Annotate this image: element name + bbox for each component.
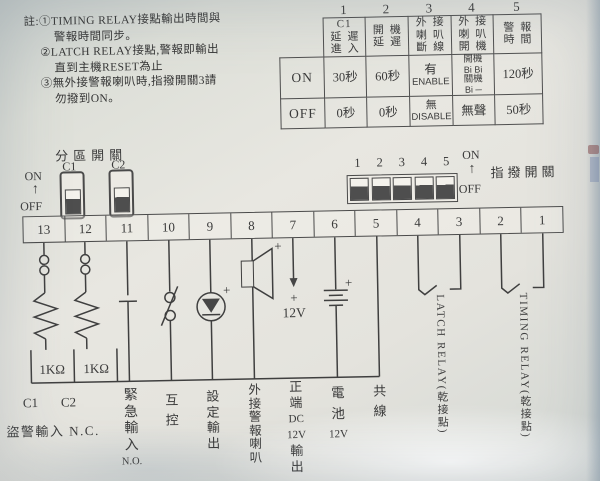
label-c2: C2: [61, 394, 76, 410]
label-common-line: 共 線: [369, 381, 392, 421]
resistor-12-value: 1KΩ: [83, 361, 109, 376]
battery-symbol: [323, 237, 350, 377]
label-mutual-control: 互 控: [161, 390, 184, 430]
manual-page-photo: 註:①TIMING RELAY接點輸出時間與 警報時間同步。 ②LATCH RE…: [0, 0, 600, 481]
dc-plus-sign: +: [290, 290, 298, 305]
speaker-plus-sign: +: [274, 238, 282, 253]
timing-relay-contact: [501, 233, 544, 293]
page-content: 註:①TIMING RELAY接點輸出時間與 警報時間同步。 ②LATCH RE…: [0, 0, 600, 481]
label-setting-output: 設 定 輸 出: [202, 388, 225, 450]
battery-plus-sign: +: [345, 275, 353, 290]
photo-edge-shadow: [586, 0, 600, 481]
latch-relay-contact: [418, 235, 461, 295]
resistor-13-value: 1KΩ: [39, 362, 65, 377]
common-wire: [377, 237, 380, 377]
label-latch-relay: LATCH RELAY(乾接點): [432, 294, 451, 434]
photo-artifact-blue: [590, 157, 599, 182]
label-c1: C1: [23, 395, 38, 411]
external-speaker-symbol: [241, 239, 275, 380]
led-plus-sign: +: [223, 282, 231, 297]
label-timing-relay: TIMING RELAY(乾接點): [515, 293, 534, 439]
emergency-no-contact: [118, 241, 139, 381]
label-burglar-input-nc: 盜警輸入 N.C.: [6, 420, 100, 441]
label-emergency-input: 緊 急 輸 入 N.O.: [120, 388, 144, 471]
label-external-speaker: 外 接 警 報 喇 叭: [244, 384, 268, 466]
mutual-control-switch: [160, 240, 180, 380]
setting-output-led: [196, 239, 227, 380]
dc-12v-label: 12V: [282, 305, 306, 320]
dc-output-arrow: [289, 238, 298, 287]
label-battery-12v: 電 池 12V: [327, 382, 350, 445]
photo-artifact-red: [588, 145, 599, 154]
label-dc-12v-output: 正 端 DC 12V 輸 出: [284, 379, 308, 475]
